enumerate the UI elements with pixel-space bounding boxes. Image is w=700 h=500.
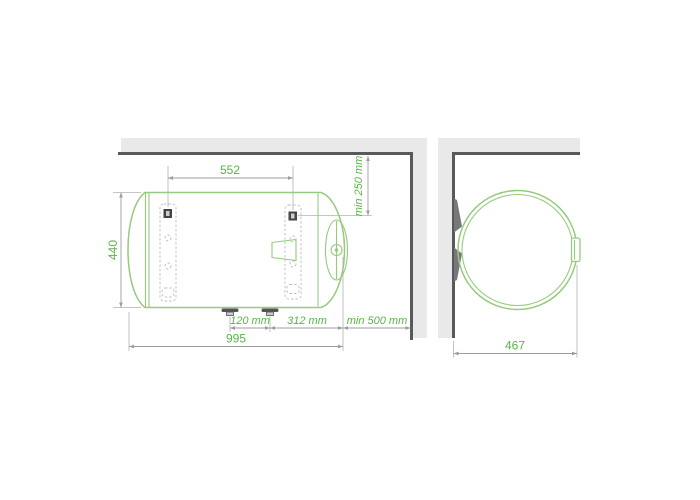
- junction-box: [272, 240, 296, 261]
- side-view: 552 min 250 mm 440 120 mm 312 mm min 500…: [106, 138, 427, 351]
- ceiling-band: [121, 138, 427, 152]
- mounting-strap-left: [160, 204, 176, 301]
- left-wall-band: [438, 152, 452, 338]
- dim-anchor-spacing-label: 552: [220, 163, 240, 177]
- dim-wall-clearance-label: min 500 mm: [347, 315, 408, 327]
- mounting-strap-right: [285, 205, 301, 299]
- dim-total-length-label: 995: [226, 332, 246, 346]
- dim-pipe-spacing-label: 120 mm: [230, 315, 270, 327]
- front-view: 467: [438, 138, 580, 358]
- wall-edge-line: [118, 154, 412, 341]
- dim-wall-clearance: min 500 mm: [343, 315, 411, 328]
- dim-depth: 467: [454, 339, 578, 354]
- dim-pipe-to-end: 312 mm: [270, 315, 343, 328]
- tank-circle-inner: [462, 195, 573, 306]
- pipe-flange: [222, 309, 239, 313]
- ceiling-band: [438, 138, 580, 152]
- dim-anchor-spacing: 552: [168, 163, 293, 178]
- right-wall-band: [413, 152, 427, 338]
- tank-circle-outer: [458, 191, 577, 310]
- dim-total-length: 995: [129, 332, 343, 347]
- anchor-bolt-slot: [291, 214, 295, 219]
- strap-foot-slot: [162, 288, 174, 297]
- installation-diagram: 552 min 250 mm 440 120 mm 312 mm min 500…: [0, 0, 700, 500]
- strap-foot-slot: [287, 285, 299, 294]
- strap-hole: [165, 263, 171, 269]
- strap-hole: [290, 236, 296, 242]
- dim-pipe-to-end-label: 312 mm: [287, 315, 327, 327]
- dim-pipe-spacing: 120 mm: [230, 315, 270, 328]
- dim-ceiling-clearance-label: min 250 mm: [353, 156, 365, 217]
- diagram-canvas: 552 min 250 mm 440 120 mm 312 mm min 500…: [0, 0, 700, 500]
- bracket-top: [454, 199, 462, 233]
- flange-hub-dot: [335, 248, 339, 252]
- dim-height-label: 440: [106, 240, 120, 260]
- anchor-bolt-slot: [166, 211, 170, 216]
- dim-depth-label: 467: [505, 339, 525, 353]
- tank-front-view: [458, 191, 580, 310]
- dimensions-side-view: 552 min 250 mm 440 120 mm 312 mm min 500…: [106, 156, 411, 347]
- dim-ceiling-clearance: min 250 mm: [353, 156, 368, 217]
- strap-hole: [290, 261, 296, 267]
- strap-outline: [160, 204, 176, 301]
- strap-hole: [165, 235, 171, 241]
- pipe-flange: [262, 309, 279, 313]
- side-tab: [572, 238, 581, 262]
- tank-side-view: [128, 193, 348, 308]
- tank-outline: [128, 193, 345, 308]
- dim-height: 440: [106, 193, 121, 308]
- wall-edge-line: [454, 154, 581, 339]
